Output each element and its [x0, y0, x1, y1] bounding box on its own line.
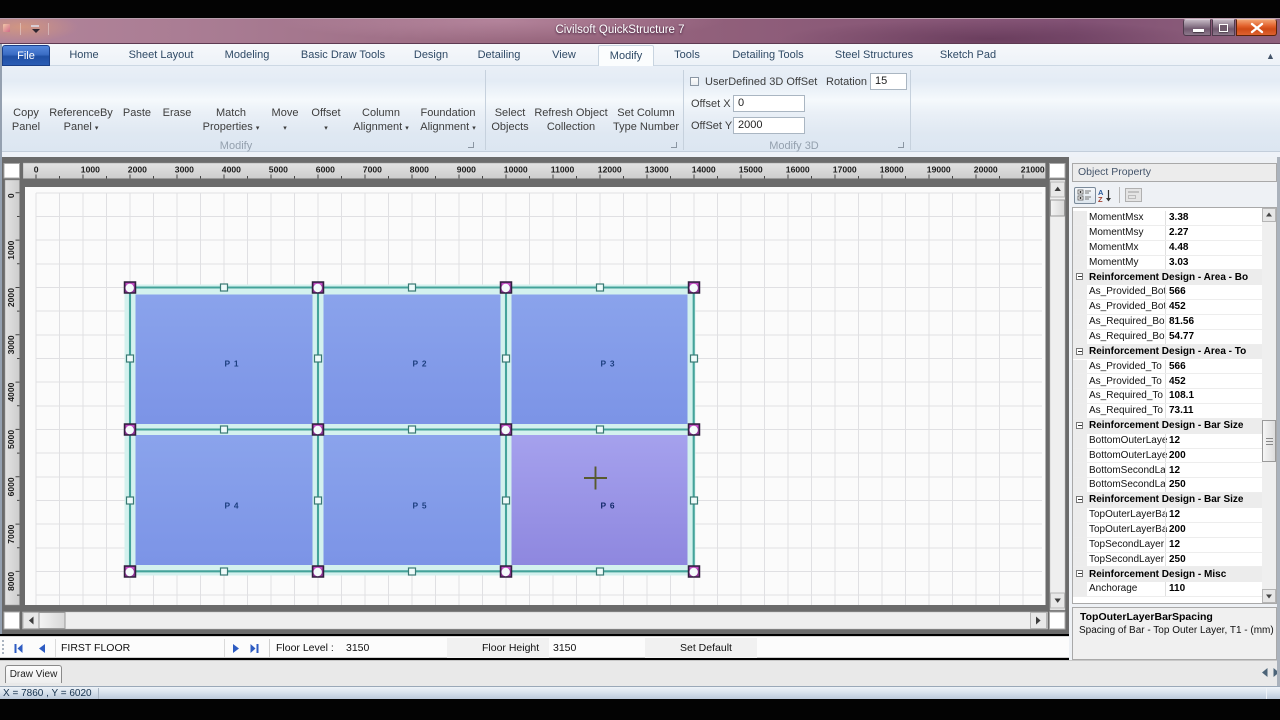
svg-text:4000: 4000: [6, 382, 16, 401]
svg-text:P 1: P 1: [225, 359, 240, 369]
svg-text:3000: 3000: [6, 335, 16, 354]
svg-text:17000: 17000: [833, 165, 857, 175]
svg-text:14000: 14000: [692, 165, 716, 175]
svg-text:5000: 5000: [6, 430, 16, 449]
svg-text:4000: 4000: [222, 165, 241, 175]
svg-text:9000: 9000: [457, 165, 476, 175]
svg-text:15000: 15000: [739, 165, 763, 175]
svg-text:6000: 6000: [316, 165, 335, 175]
svg-text:Z: Z: [1098, 195, 1103, 203]
svg-text:18000: 18000: [880, 165, 904, 175]
svg-text:2000: 2000: [6, 288, 16, 307]
svg-text:P 5: P 5: [413, 501, 428, 511]
svg-text:11000: 11000: [551, 165, 575, 175]
svg-text:8000: 8000: [410, 165, 429, 175]
svg-text:5000: 5000: [269, 165, 288, 175]
svg-text:10000: 10000: [504, 165, 528, 175]
svg-text:P 3: P 3: [601, 359, 616, 369]
svg-text:P 6: P 6: [601, 501, 616, 511]
svg-text:1000: 1000: [6, 240, 16, 259]
svg-text:8000: 8000: [6, 572, 16, 591]
svg-text:13000: 13000: [645, 165, 669, 175]
svg-text:0: 0: [34, 165, 39, 175]
svg-text:21000: 21000: [1021, 165, 1045, 175]
svg-text:16000: 16000: [786, 165, 810, 175]
svg-text:20000: 20000: [974, 165, 998, 175]
svg-text:7000: 7000: [6, 524, 16, 543]
svg-text:0: 0: [6, 193, 16, 198]
svg-text:3000: 3000: [175, 165, 194, 175]
svg-text:2000: 2000: [128, 165, 147, 175]
svg-text:19000: 19000: [927, 165, 951, 175]
svg-text:P 2: P 2: [413, 359, 428, 369]
svg-text:7000: 7000: [363, 165, 382, 175]
svg-text:1000: 1000: [81, 165, 100, 175]
svg-text:P 4: P 4: [225, 501, 240, 511]
svg-text:6000: 6000: [6, 477, 16, 496]
svg-text:12000: 12000: [598, 165, 622, 175]
